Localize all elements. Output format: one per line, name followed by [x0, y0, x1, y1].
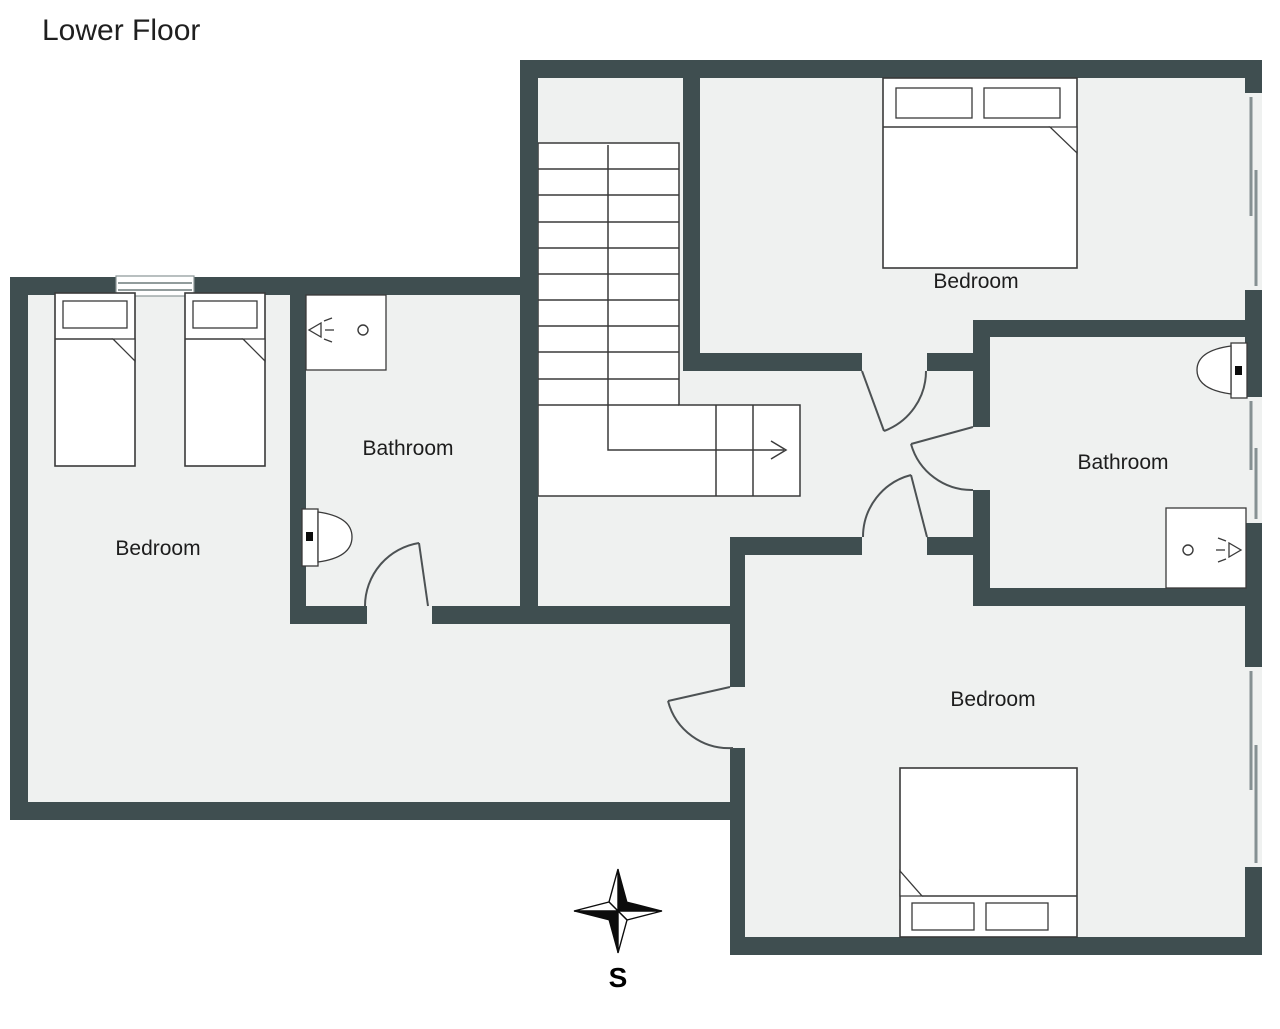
- twin-bed-icon: [55, 293, 135, 466]
- room-label-bedroom-left: Bedroom: [115, 537, 200, 560]
- twin-bed-icon: [185, 293, 265, 466]
- room-label-bathroom-left: Bathroom: [362, 437, 453, 460]
- compass-south-label: S: [609, 962, 628, 993]
- double-bed-icon: [900, 768, 1077, 937]
- page-title: Lower Floor: [42, 14, 200, 47]
- room-label-bathroom-right: Bathroom: [1077, 451, 1168, 474]
- compass-rose-icon: S: [574, 869, 662, 993]
- shower-icon: [1166, 508, 1246, 588]
- floor-plan: Bedroom Bathroom Bedroom Bathroom Bedroo…: [0, 0, 1280, 1029]
- room-label-bedroom-bottom-right: Bedroom: [950, 688, 1035, 711]
- room-label-bedroom-top-right: Bedroom: [933, 270, 1018, 293]
- double-bed-icon: [883, 78, 1077, 268]
- shower-icon: [306, 295, 386, 370]
- floor-plan-page: Bedroom Bathroom Bedroom Bathroom Bedroo…: [0, 0, 1280, 1029]
